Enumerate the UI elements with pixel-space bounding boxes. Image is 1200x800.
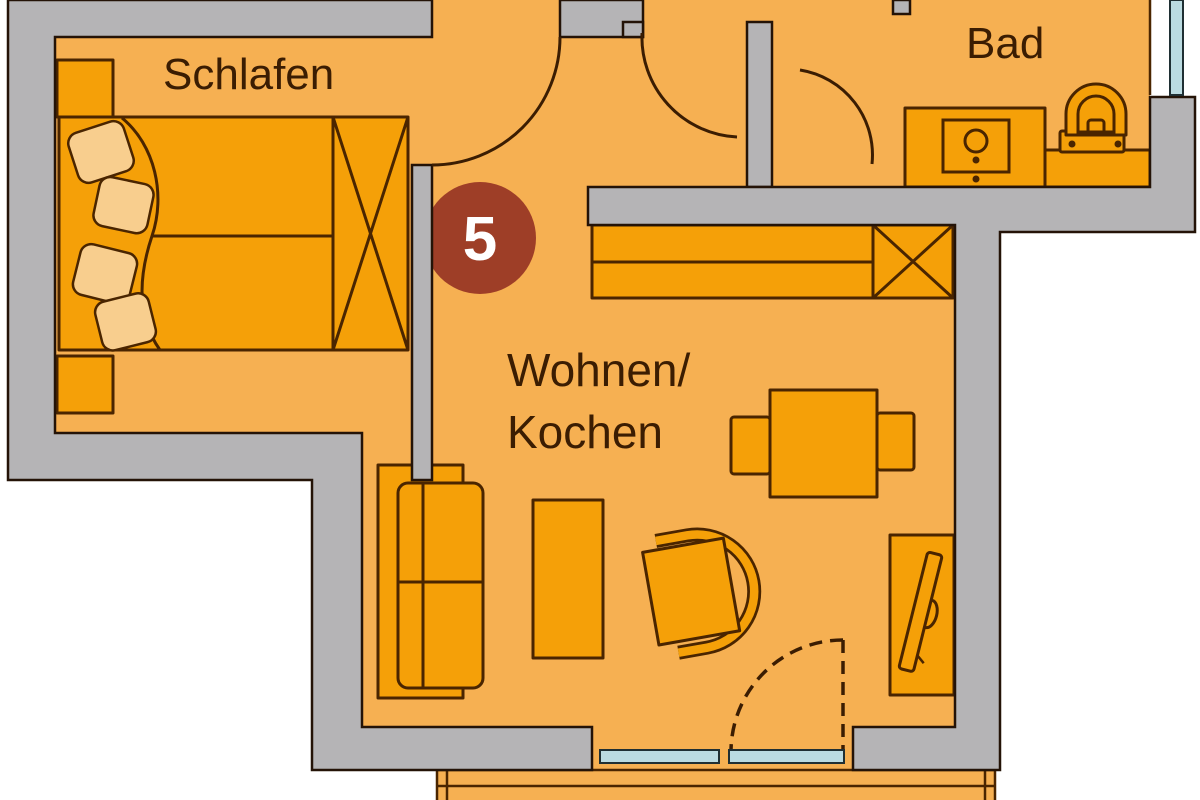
- wall-door-stub: [623, 22, 643, 37]
- kitchen-furniture: [592, 225, 953, 298]
- window-glass-icon: [1170, 0, 1183, 95]
- living-label-line1: Wohnen/: [507, 344, 691, 396]
- balcony: [437, 770, 995, 800]
- washbasin-drain-dot: [973, 157, 980, 164]
- floorplan-page: Schlafen Bad Wohnen/ Kochen 5: [0, 0, 1200, 800]
- vanity-knob-dot: [973, 176, 980, 183]
- wall-bedroom-east: [412, 165, 432, 480]
- sideboard-icon: [890, 535, 954, 695]
- unit-badge-number: 5: [463, 205, 497, 274]
- floorplan-canvas: Schlafen Bad Wohnen/ Kochen 5: [0, 0, 1200, 800]
- bathroom-ledge: [1045, 150, 1150, 187]
- window-glass-icon: [600, 750, 719, 763]
- bathroom-label: Bad: [966, 19, 1044, 68]
- dining-table-icon: [770, 390, 877, 497]
- window-glass-icon: [729, 750, 844, 763]
- dining-chair-icon: [877, 413, 914, 470]
- wall-bath-stub: [893, 0, 910, 14]
- coffee-table-icon: [533, 500, 603, 658]
- sofa-icon: [378, 465, 483, 698]
- bedroom-label: Schlafen: [163, 50, 334, 99]
- living-label-line2: Kochen: [507, 406, 663, 458]
- dining-chair-icon: [731, 417, 770, 474]
- wall-hall-bath-divider: [747, 22, 772, 187]
- nightstand-icon: [57, 60, 113, 117]
- unit-badge: 5: [424, 182, 536, 294]
- nightstand-icon: [57, 356, 113, 413]
